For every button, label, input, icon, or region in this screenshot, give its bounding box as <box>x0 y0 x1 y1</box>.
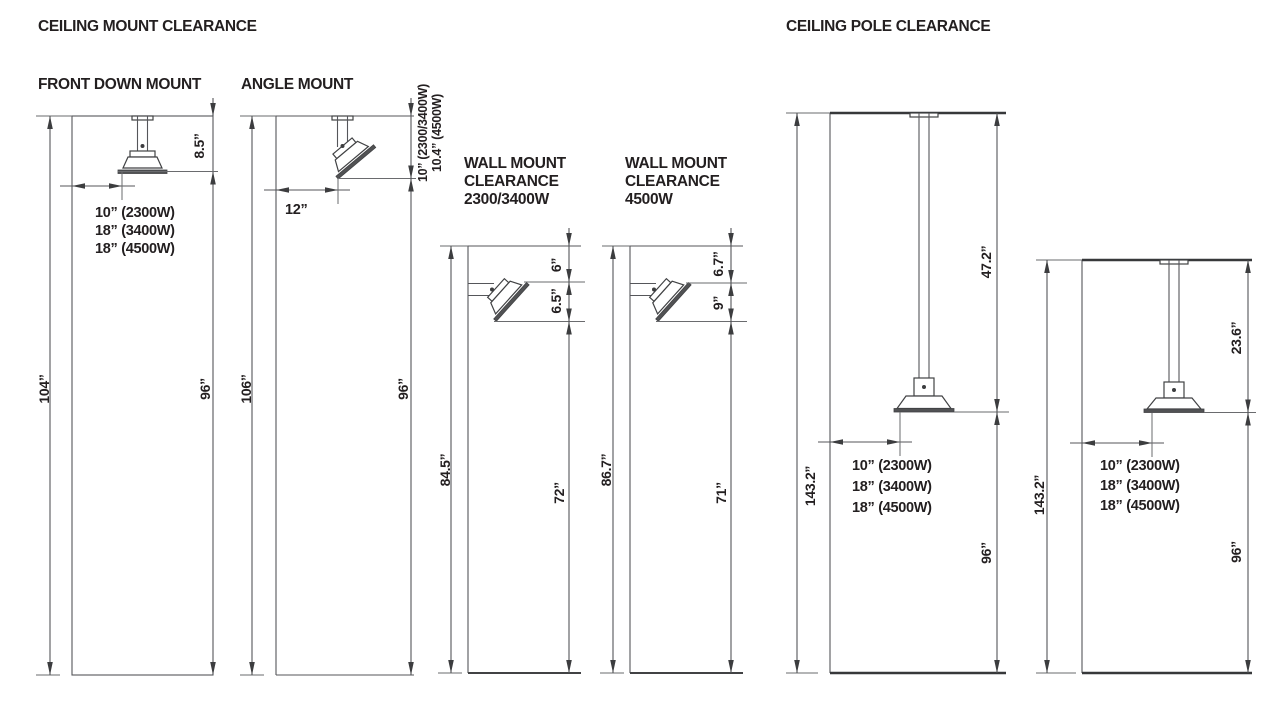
diagram-title-line3: 4500W <box>625 191 673 208</box>
clearance-diagram: CEILING MOUNT CLEARANCE CEILING POLE CLE… <box>0 0 1280 701</box>
offset-label-3400w: 18” (3400W) <box>1100 478 1180 494</box>
arrow-up-icon <box>448 246 454 259</box>
arrow-left-icon <box>72 183 85 189</box>
arrow-up-icon <box>210 172 216 185</box>
arrow-down-icon <box>610 660 616 673</box>
diagram-title: FRONT DOWN MOUNT <box>38 76 202 93</box>
arrow-up-icon <box>994 412 1000 425</box>
dim-label-ceiling-height: 104” <box>36 374 52 403</box>
dim-label-drop-2300-3400: 10” (2300/3400W) <box>416 84 430 182</box>
dim-label-floor-to-heater: 96” <box>1228 541 1244 563</box>
offset-label-2300w: 10” (2300W) <box>95 205 175 221</box>
offset-label-2300w: 10” (2300W) <box>852 458 932 474</box>
arrow-up-icon <box>566 322 572 335</box>
arrow-left-icon <box>1082 440 1095 446</box>
dim-label-heater-height: 6.5” <box>548 288 564 313</box>
arrow-up-icon <box>794 113 800 126</box>
heater-icon <box>468 270 529 321</box>
diagram-title-line1: WALL MOUNT <box>464 155 567 172</box>
arrow-down-icon <box>210 103 216 116</box>
offset-label-4500w: 18” (4500W) <box>852 500 932 516</box>
arrow-left-icon <box>830 439 843 445</box>
dim-label-floor-to-heater: 96” <box>395 378 411 400</box>
offset-label-4500w: 18” (4500W) <box>95 241 175 257</box>
arrow-down-icon <box>408 166 414 179</box>
front-down-mount-diagram: FRONT DOWN MOUNT 104” 8.5” 96” <box>36 76 218 675</box>
arrow-down-icon <box>994 399 1000 412</box>
arrow-down-icon <box>728 270 734 283</box>
arrow-down-icon <box>566 309 572 322</box>
angle-mount-diagram: ANGLE MOUNT 106” 10” (2300/3 <box>238 76 444 675</box>
arrow-left-icon <box>276 187 289 193</box>
dim-label-floor-to-heater: 71” <box>713 482 729 504</box>
arrow-down-icon <box>408 103 414 116</box>
heater-icon <box>324 116 376 179</box>
dim-label-ceiling-height: 106” <box>238 374 254 403</box>
arrow-down-icon <box>47 662 53 675</box>
dim-label-ceiling-height: 84.5” <box>437 454 453 487</box>
dim-label-heater-drop: 8.5” <box>191 133 207 158</box>
offset-label-2300w: 10” (2300W) <box>1100 458 1180 474</box>
offset-label: 12” <box>285 202 308 218</box>
ceiling-pole-long-diagram: 143.2” 47.2” 96” 10” (2300W) 18” (3400W)… <box>786 113 1009 673</box>
arrow-down-icon <box>210 662 216 675</box>
offset-label-3400w: 18” (3400W) <box>852 479 932 495</box>
heater-icon <box>630 270 691 321</box>
arrow-up-icon <box>249 116 255 129</box>
arrow-down-icon <box>249 662 255 675</box>
arrow-up-icon <box>408 179 414 192</box>
arrow-down-icon <box>728 309 734 322</box>
wall-mount-2300-3400-diagram: WALL MOUNT CLEARANCE 2300/3400W 84.5” <box>437 155 585 673</box>
arrow-right-icon <box>887 439 900 445</box>
dim-label-ceiling-height: 86.7” <box>598 454 614 487</box>
arrow-down-icon <box>1245 660 1251 673</box>
dim-label-floor-to-heater: 96” <box>197 378 213 400</box>
arrow-down-icon <box>1044 660 1050 673</box>
arrow-down-icon <box>994 660 1000 673</box>
arrow-down-icon <box>728 660 734 673</box>
dim-label-drop-4500: 10.4” (4500W) <box>430 94 444 172</box>
arrow-down-icon <box>566 660 572 673</box>
dim-label-ceiling-height: 143.2” <box>1031 475 1047 515</box>
arrow-up-icon <box>1245 413 1251 426</box>
arrow-right-icon <box>1139 440 1152 446</box>
arrow-down-icon <box>408 662 414 675</box>
arrow-up-icon <box>1245 260 1251 273</box>
arrow-right-icon <box>325 187 338 193</box>
dim-label-ceiling-height: 143.2” <box>802 466 818 506</box>
arrow-up-icon <box>728 283 734 296</box>
dim-label-floor-to-heater: 72” <box>551 482 567 504</box>
arrow-down-icon <box>1245 400 1251 413</box>
arrow-up-icon <box>566 282 572 295</box>
arrow-up-icon <box>47 116 53 129</box>
section-title-ceiling-mount: CEILING MOUNT CLEARANCE <box>38 18 257 35</box>
dim-label-floor-to-heater: 96” <box>978 542 994 564</box>
offset-label-4500w: 18” (4500W) <box>1100 498 1180 514</box>
arrow-down-icon <box>448 660 454 673</box>
arrow-up-icon <box>728 322 734 335</box>
arrow-up-icon <box>1044 260 1050 273</box>
arrow-right-icon <box>109 183 122 189</box>
diagram-title: ANGLE MOUNT <box>241 76 354 93</box>
dim-label-pole-drop: 23.6” <box>1228 322 1244 355</box>
diagram-title-line2: CLEARANCE <box>625 173 720 190</box>
clearance-diagram-page: CEILING MOUNT CLEARANCE CEILING POLE CLE… <box>0 0 1280 701</box>
heater-icon <box>118 116 167 174</box>
dim-label-heater-height: 9” <box>710 296 726 310</box>
diagram-title-line2: CLEARANCE <box>464 173 559 190</box>
room-outline <box>72 116 213 675</box>
arrow-down-icon <box>566 269 572 282</box>
section-title-ceiling-pole: CEILING POLE CLEARANCE <box>786 18 990 35</box>
arrow-down-icon <box>566 233 572 246</box>
dim-label-ceiling-gap: 6.7” <box>710 251 726 276</box>
arrow-down-icon <box>728 233 734 246</box>
diagram-title-line1: WALL MOUNT <box>625 155 728 172</box>
dim-label-ceiling-gap: 6” <box>548 258 564 272</box>
diagram-title-line3: 2300/3400W <box>464 191 550 208</box>
arrow-up-icon <box>994 113 1000 126</box>
pole-heater-icon <box>894 113 954 412</box>
arrow-up-icon <box>610 246 616 259</box>
arrow-down-icon <box>794 660 800 673</box>
ceiling-pole-short-diagram: 143.2” 23.6” 96” 10” (2300W) 18” (3400W)… <box>1031 260 1256 673</box>
dim-label-pole-drop: 47.2” <box>978 246 994 279</box>
offset-label-3400w: 18” (3400W) <box>95 223 175 239</box>
wall-mount-4500-diagram: WALL MOUNT CLEARANCE 4500W 86.7” <box>598 155 747 673</box>
pole-heater-icon <box>1144 260 1204 413</box>
